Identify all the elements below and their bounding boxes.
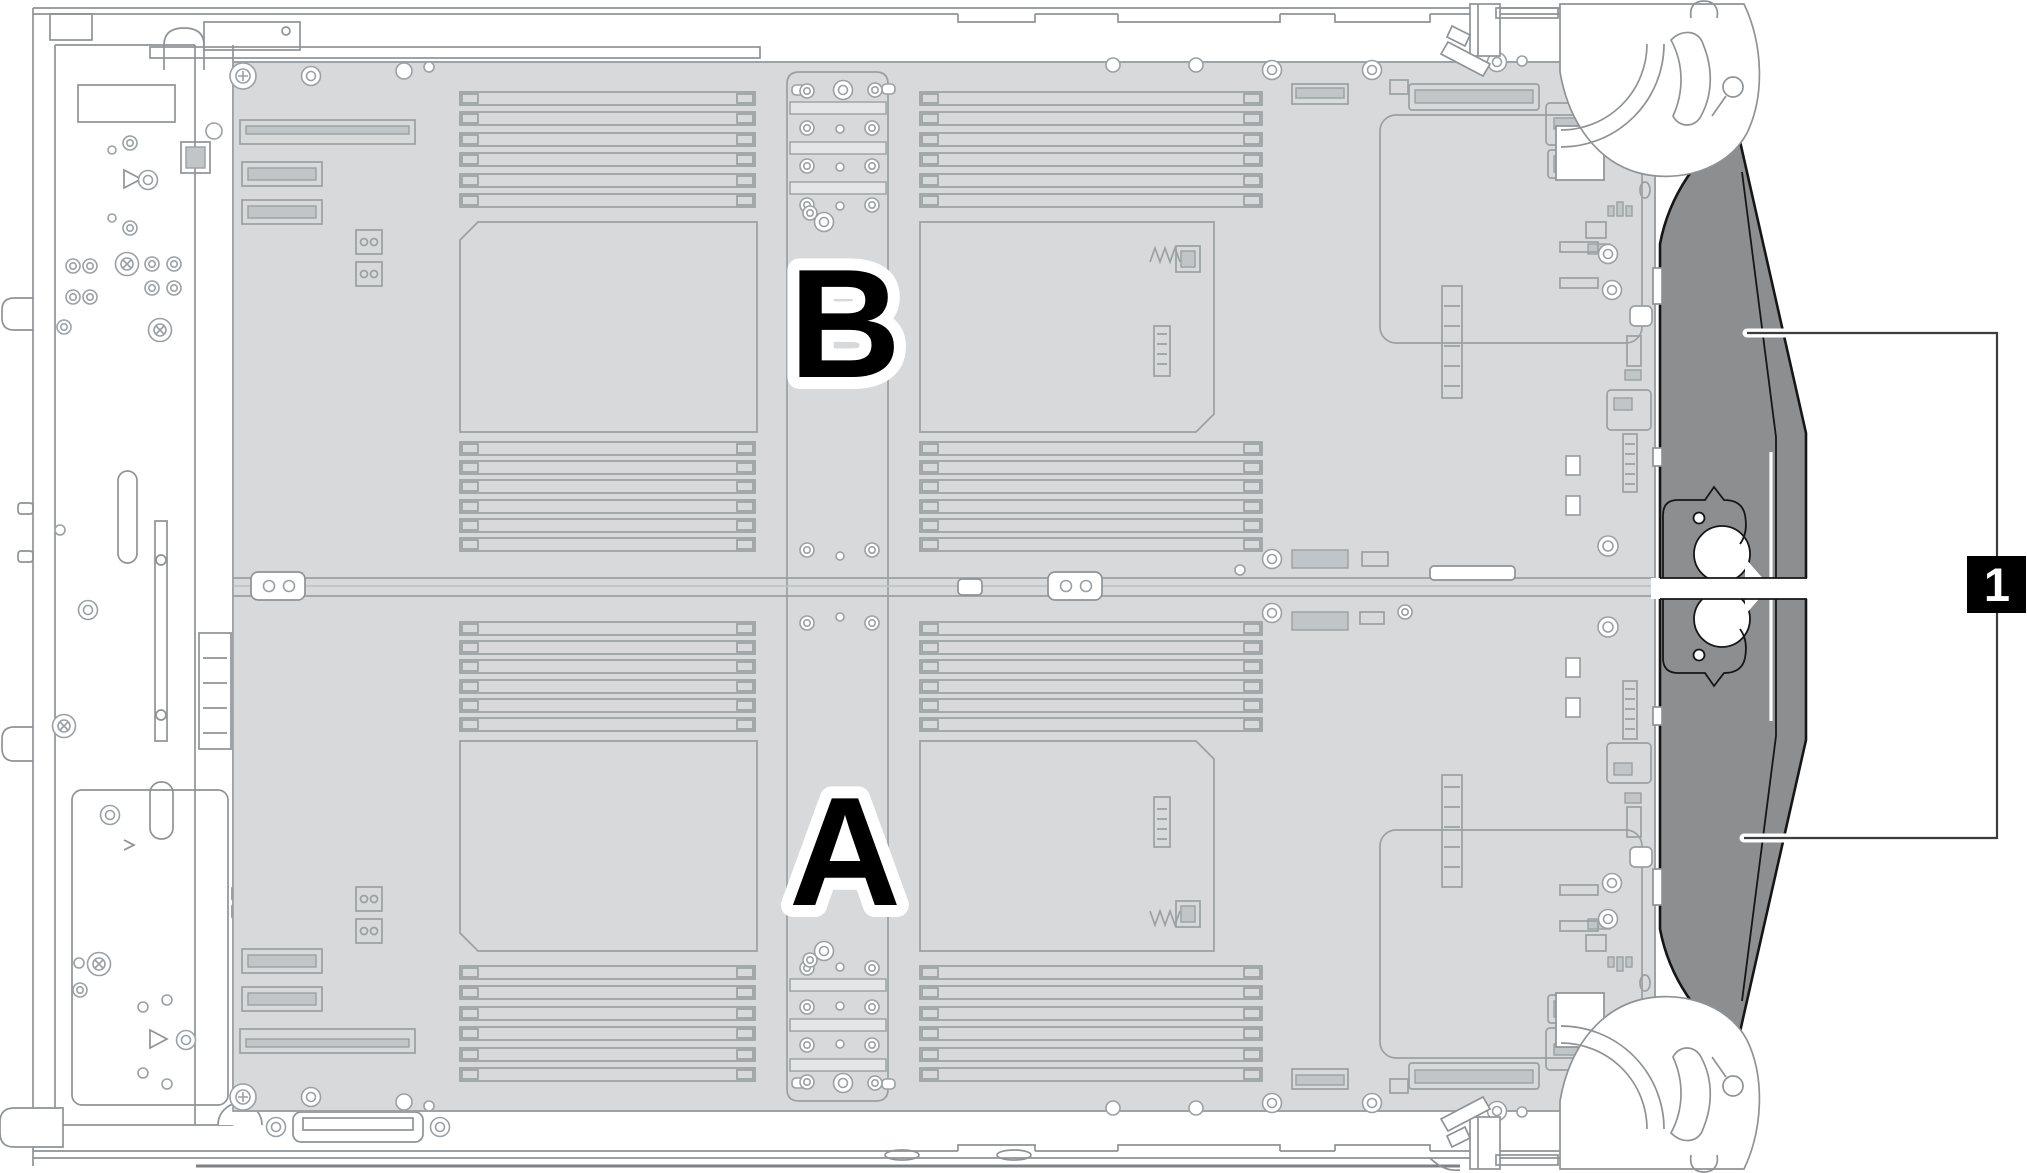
baffle-center-channel [1651,578,1811,599]
server-tray-diagram: B A 1 [0,0,2027,1173]
diagram-canvas: B A 1 [0,0,2027,1173]
node-a-label: A [789,765,901,938]
node-b-label: B [789,237,901,410]
callout-1-number: 1 [1984,558,2010,611]
